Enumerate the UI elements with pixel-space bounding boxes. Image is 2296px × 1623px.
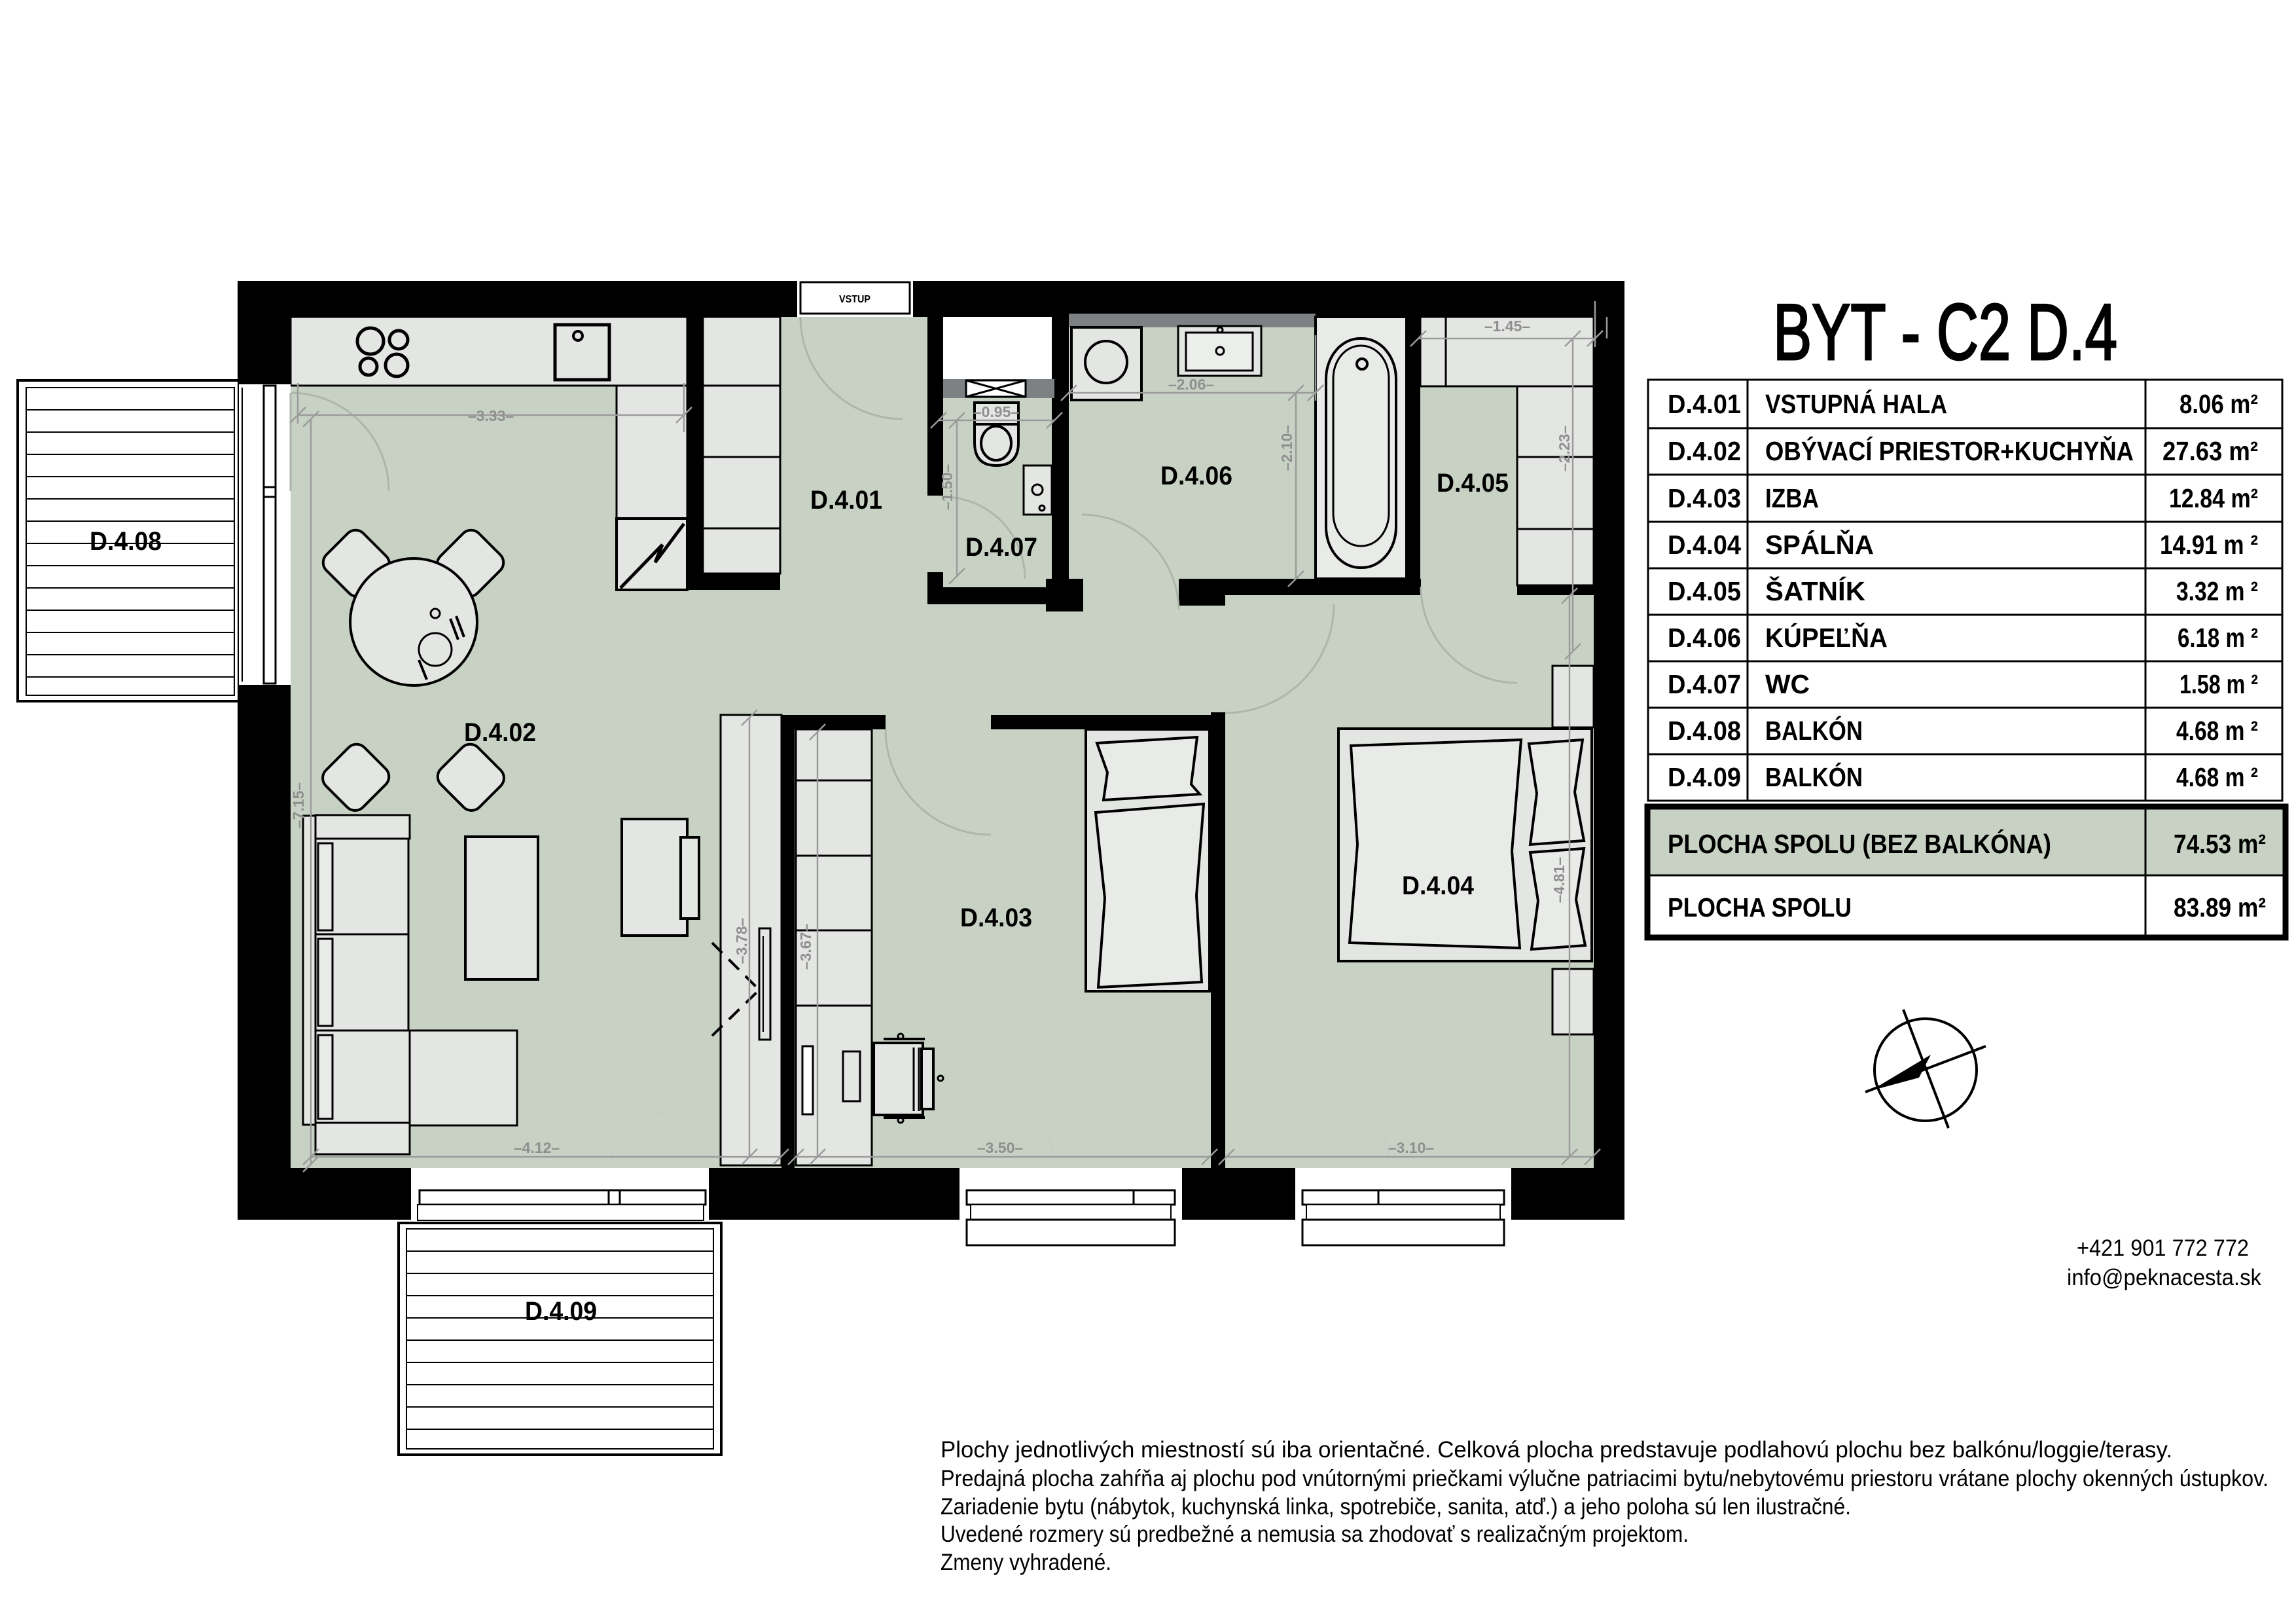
- svg-text:info@peknacesta.sk: info@peknacesta.sk: [2067, 1265, 2261, 1290]
- svg-text:–7.15–: –7.15–: [290, 782, 307, 829]
- svg-text:8.06 m²: 8.06 m²: [2179, 389, 2258, 419]
- svg-text:D.4.03: D.4.03: [1668, 483, 1741, 513]
- svg-text:–0.95–: –0.95–: [973, 403, 1020, 420]
- svg-text:D.4.09: D.4.09: [1668, 762, 1741, 792]
- svg-text:–2.06–: –2.06–: [1168, 376, 1215, 393]
- svg-text:–3.33–: –3.33–: [468, 407, 514, 424]
- svg-text:1.58 m ²: 1.58 m ²: [2179, 669, 2258, 699]
- svg-text:12.84 m²: 12.84 m²: [2169, 483, 2258, 513]
- svg-text:–3.67–: –3.67–: [797, 924, 814, 970]
- svg-text:KÚPEĽŇA: KÚPEĽŇA: [1765, 623, 1888, 653]
- svg-text:PLOCHA SPOLU: PLOCHA SPOLU: [1668, 892, 1852, 922]
- svg-text:–4.81–: –4.81–: [1551, 857, 1568, 903]
- svg-text:D.4.08: D.4.08: [90, 527, 162, 556]
- svg-text:4.68 m ²: 4.68 m ²: [2176, 716, 2258, 746]
- svg-text:4.68 m ²: 4.68 m ²: [2176, 762, 2258, 792]
- svg-text:BALKÓN: BALKÓN: [1765, 762, 1863, 792]
- svg-text:D.4.09: D.4.09: [525, 1297, 597, 1326]
- svg-text:Zariadenie bytu (nábytok, kuch: Zariadenie bytu (nábytok, kuchynská link…: [941, 1494, 1851, 1520]
- svg-text:BYT - C2 D.4: BYT - C2 D.4: [1773, 287, 2117, 376]
- svg-text:SPÁLŇA: SPÁLŇA: [1765, 530, 1874, 560]
- svg-text:D.4.02: D.4.02: [464, 718, 536, 747]
- svg-text:–3.50–: –3.50–: [977, 1139, 1024, 1156]
- svg-text:+421 901 772 772: +421 901 772 772: [2077, 1235, 2249, 1261]
- svg-text:ŠATNÍK: ŠATNÍK: [1765, 576, 1865, 606]
- svg-text:–3.78–: –3.78–: [733, 918, 750, 964]
- svg-text:VSTUPNÁ HALA: VSTUPNÁ HALA: [1765, 389, 1947, 419]
- svg-text:D.4.01: D.4.01: [810, 486, 882, 515]
- svg-text:–1.50–: –1.50–: [939, 464, 956, 511]
- svg-text:3.32 m ²: 3.32 m ²: [2176, 576, 2258, 606]
- svg-text:74.53 m²: 74.53 m²: [2174, 829, 2266, 859]
- svg-text:D.4.06: D.4.06: [1668, 623, 1741, 653]
- svg-text:6.18 m ²: 6.18 m ²: [2178, 623, 2258, 653]
- svg-text:Plochy jednotlivých miestností: Plochy jednotlivých miestností sú iba or…: [941, 1437, 2172, 1463]
- svg-text:D.4.06: D.4.06: [1160, 462, 1232, 490]
- svg-text:D.4.01: D.4.01: [1668, 389, 1741, 419]
- svg-text:PLOCHA SPOLU (BEZ BALKÓNA): PLOCHA SPOLU (BEZ BALKÓNA): [1668, 829, 2051, 859]
- svg-text:OBÝVACÍ PRIESTOR+KUCHYŇA: OBÝVACÍ PRIESTOR+KUCHYŇA: [1765, 436, 2134, 466]
- svg-text:D.4.07: D.4.07: [1668, 669, 1741, 699]
- svg-text:VSTUP: VSTUP: [839, 294, 870, 305]
- svg-text:–3.10–: –3.10–: [1388, 1139, 1435, 1156]
- svg-text:–2.10–: –2.10–: [1278, 425, 1295, 471]
- svg-text:D.4.04: D.4.04: [1668, 530, 1741, 560]
- svg-text:–1.45–: –1.45–: [1484, 318, 1531, 335]
- svg-text:Predajná plocha zahŕňa aj ploc: Predajná plocha zahŕňa aj plochu pod vnú…: [941, 1466, 2269, 1491]
- svg-text:14.91 m ²: 14.91 m ²: [2160, 530, 2258, 560]
- svg-text:–4.12–: –4.12–: [514, 1139, 560, 1156]
- svg-text:83.89 m²: 83.89 m²: [2174, 892, 2266, 922]
- svg-text:D.4.05: D.4.05: [1668, 576, 1741, 606]
- svg-text:27.63 m²: 27.63 m²: [2162, 436, 2258, 466]
- svg-text:D.4.05: D.4.05: [1437, 469, 1509, 498]
- svg-text:D.4.03: D.4.03: [960, 903, 1032, 932]
- svg-text:IZBA: IZBA: [1765, 483, 1819, 513]
- svg-text:Zmeny vyhradené.: Zmeny vyhradené.: [941, 1550, 1111, 1575]
- svg-text:Uvedené rozmery sú predbežné a: Uvedené rozmery sú predbežné a nemusia s…: [941, 1522, 1689, 1547]
- svg-text:D.4.07: D.4.07: [965, 533, 1037, 562]
- svg-text:BALKÓN: BALKÓN: [1765, 716, 1863, 746]
- svg-text:D.4.08: D.4.08: [1668, 716, 1741, 746]
- svg-text:–2.23–: –2.23–: [1556, 426, 1573, 472]
- svg-text:D.4.02: D.4.02: [1668, 436, 1741, 466]
- svg-text:WC: WC: [1765, 669, 1810, 699]
- svg-text:D.4.04: D.4.04: [1402, 871, 1475, 900]
